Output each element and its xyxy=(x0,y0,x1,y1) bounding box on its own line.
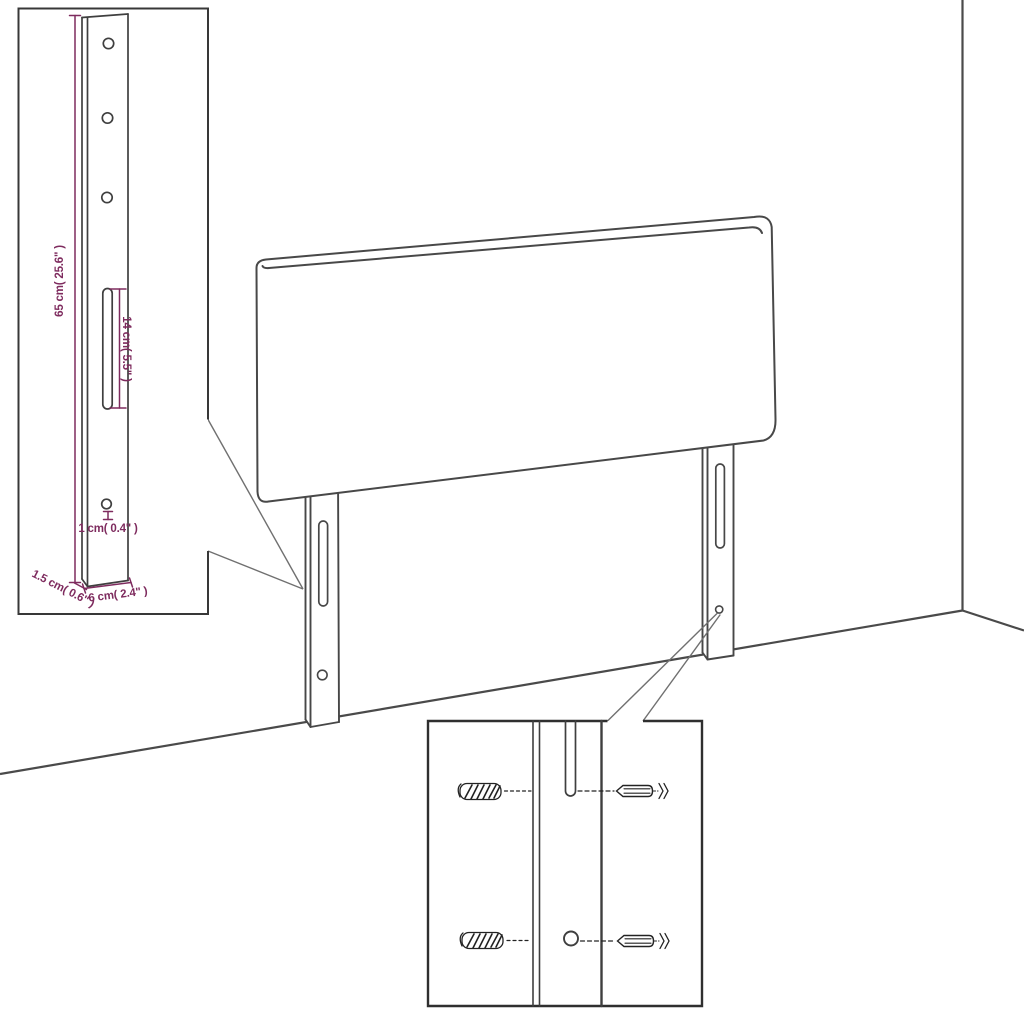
left-mounting-leg xyxy=(306,470,340,727)
diagram-canvas xyxy=(0,0,1024,1024)
right-mounting-leg xyxy=(703,430,734,660)
headboard-panel xyxy=(257,217,776,502)
headboard-assembly-diagram: 65 cm( 25.6" ) 14 cm( 5.5" ) 1 cm( 0.4" … xyxy=(0,0,1024,1024)
dimension-label-leg-height: 65 cm( 25.6" ) xyxy=(54,245,66,317)
dimension-label-hole-diameter: 1 cm( 0.4" ) xyxy=(78,523,137,535)
dimension-label-slot-length: 14 cm( 5.5" ) xyxy=(120,316,132,382)
floor-line-right xyxy=(963,611,1024,631)
inset-screw-mounting-detail xyxy=(428,721,702,1006)
headboard-outline xyxy=(257,217,776,502)
